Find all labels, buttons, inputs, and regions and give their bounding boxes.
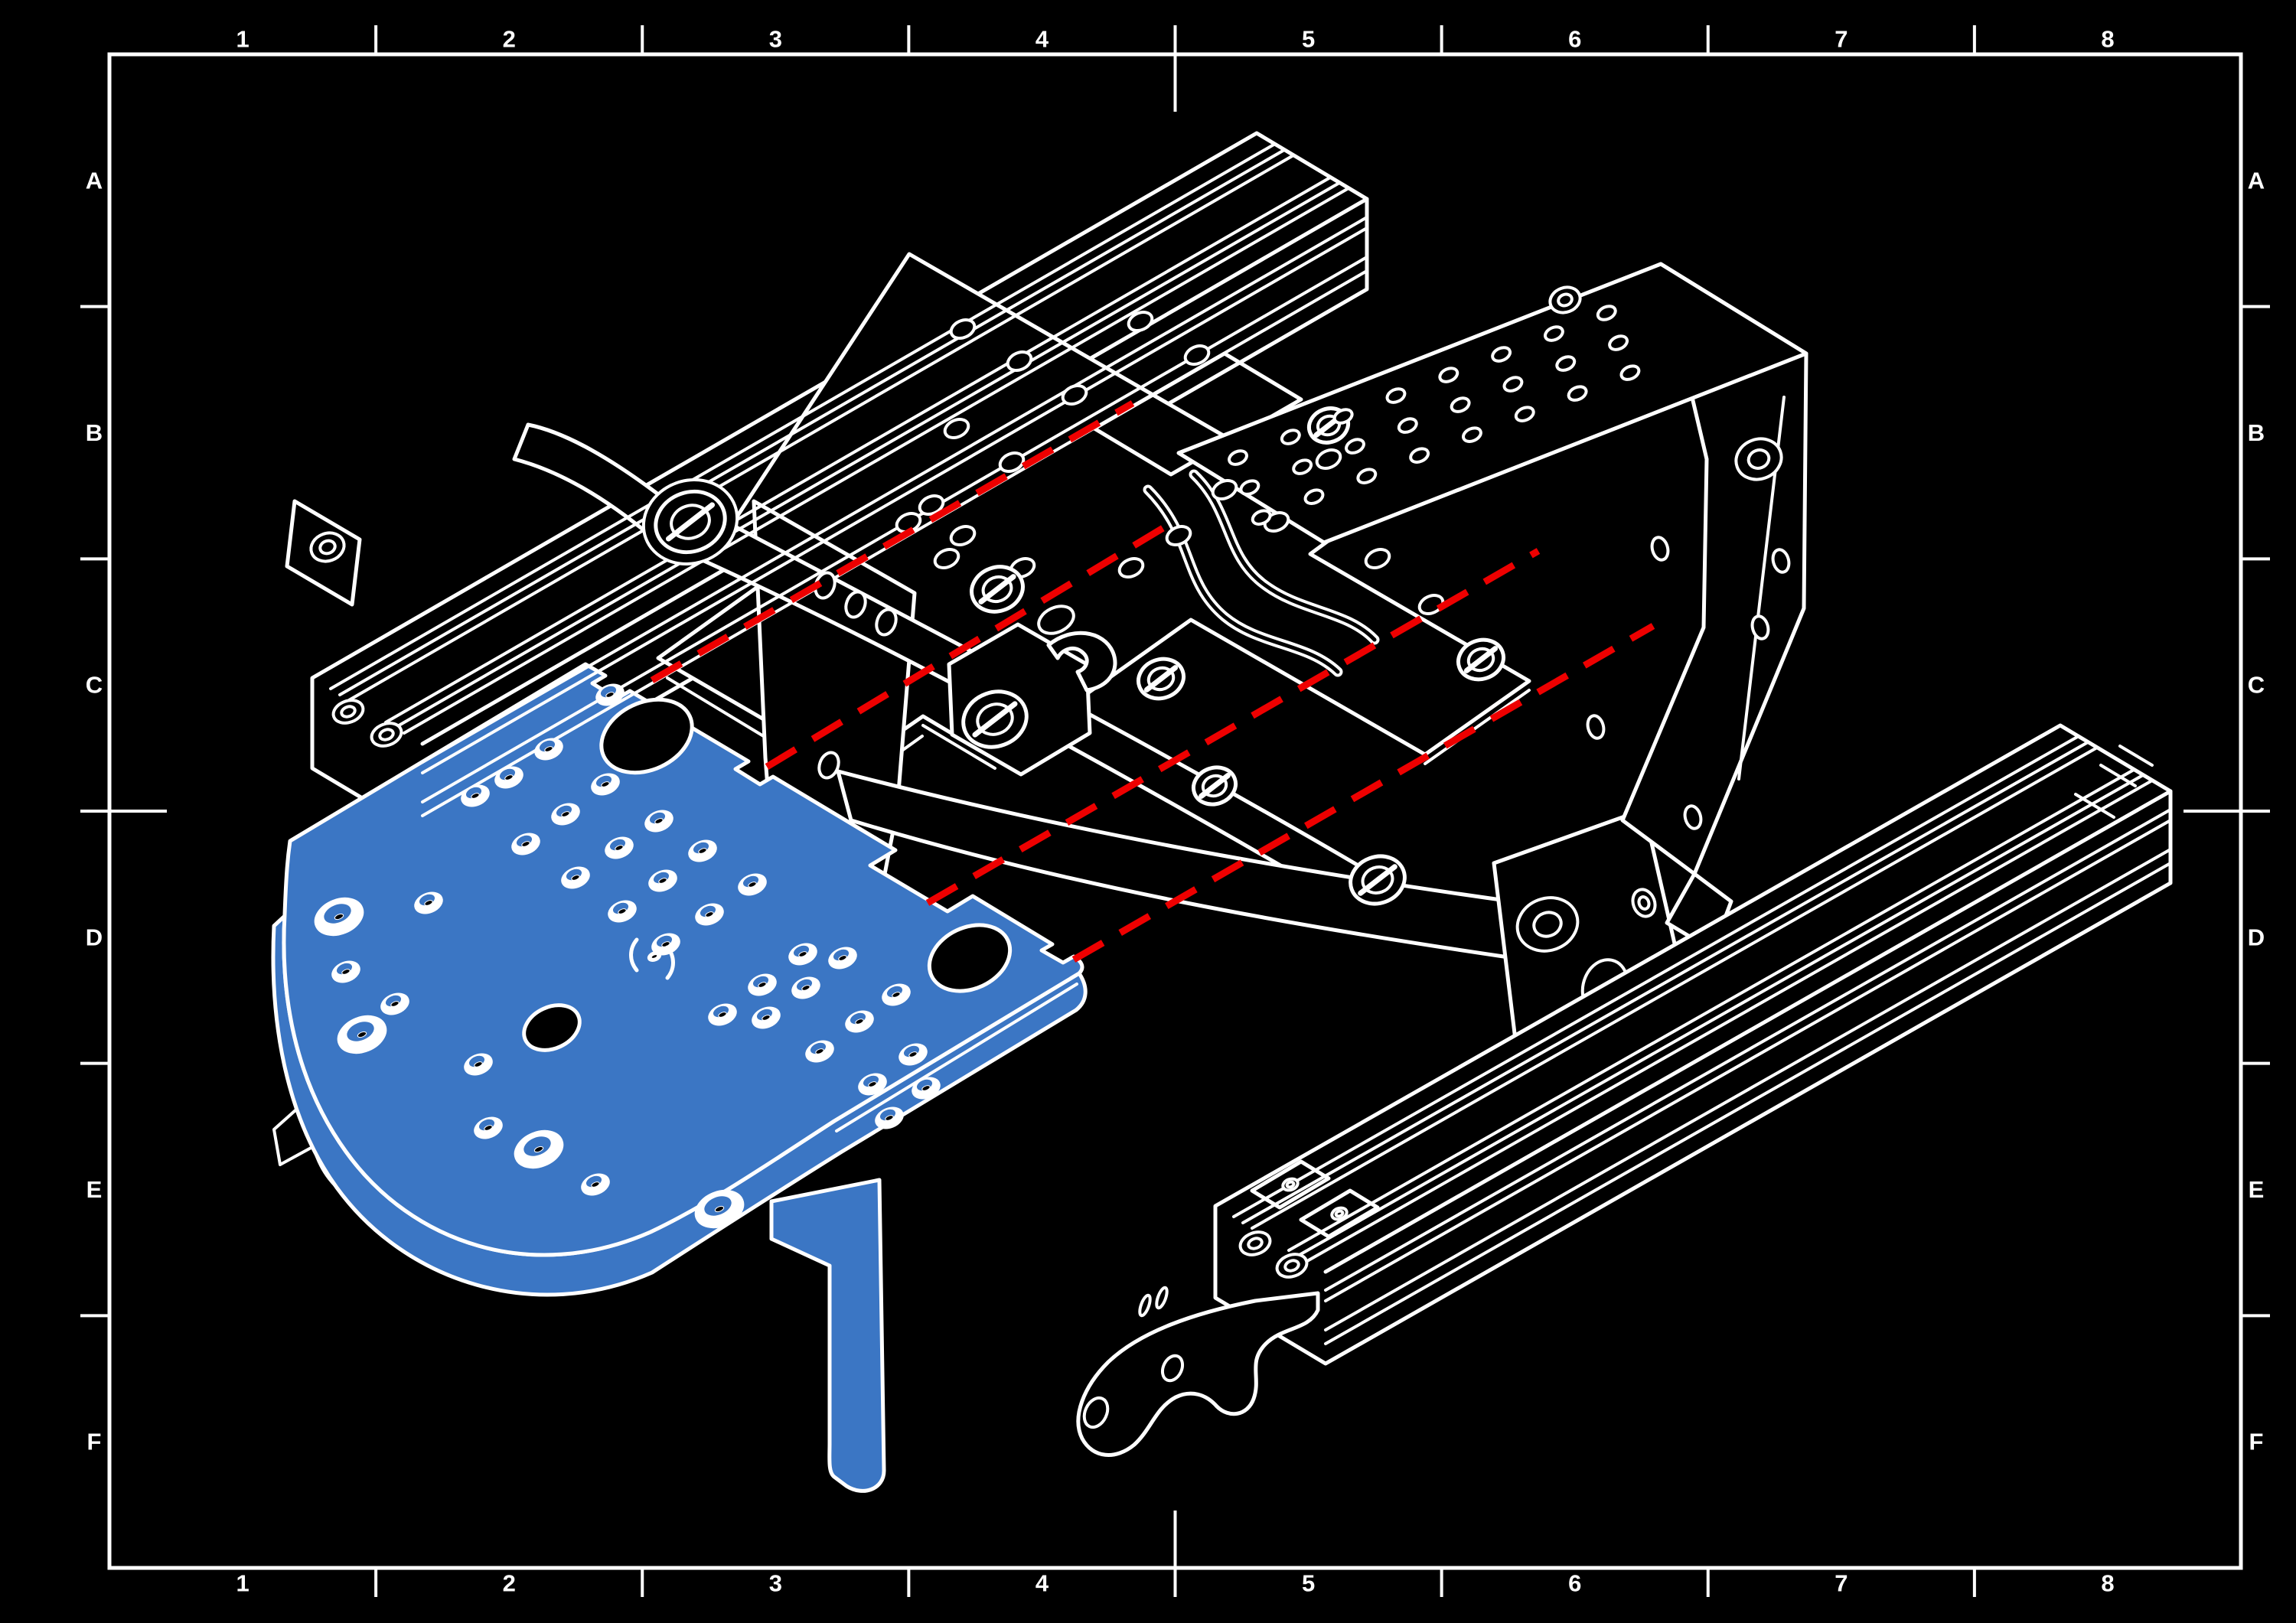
grid-label-col-bottom: 8 [2101, 1570, 2114, 1597]
grid-label-col-bottom: 1 [236, 1570, 249, 1597]
rail-groove-line [1326, 810, 2170, 1290]
grid-label-row-right: B [2248, 419, 2265, 446]
exploded-assembly-view [273, 133, 2170, 1491]
grid-label-row-left: D [86, 924, 103, 950]
grid-label-col-top: 4 [1035, 26, 1049, 53]
drawing-sheet: 1122334455667788AABBCCDDEEFF [0, 0, 2296, 1623]
grid-label-row-right: C [2248, 672, 2265, 699]
grid-label-col-bottom: 5 [1302, 1570, 1315, 1597]
rail-groove-line [1289, 770, 2134, 1250]
slot-hole [1585, 714, 1606, 740]
grid-label-col-top: 2 [503, 26, 516, 53]
ring-inner [1336, 1211, 1344, 1217]
grid-label-col-top: 8 [2101, 26, 2114, 53]
assembly-drawing: 1122334455667788AABBCCDDEEFF [0, 0, 2296, 1623]
grid-label-col-top: 1 [236, 26, 249, 53]
rail-groove-line [1307, 781, 2152, 1261]
grid-label-row-left: F [87, 1429, 102, 1455]
grid-label-col-bottom: 7 [1835, 1570, 1848, 1597]
ring-inner [1287, 1181, 1295, 1188]
slot-hole [1649, 536, 1670, 562]
grid-label-col-bottom: 2 [503, 1570, 516, 1597]
grid-label-col-top: 7 [1835, 26, 1848, 53]
grid-label-row-left: A [86, 167, 103, 194]
grid-label-row-right: D [2248, 924, 2265, 950]
grid-label-row-left: C [86, 672, 103, 699]
part-bottom-wing-bracket [1078, 1293, 1318, 1455]
grid-label-col-bottom: 6 [1568, 1570, 1581, 1597]
slotted-screw [1133, 653, 1189, 705]
grid-label-col-bottom: 3 [769, 1570, 782, 1597]
grid-label-row-right: A [2248, 167, 2265, 194]
rail-groove-line [1298, 775, 2143, 1256]
grid-label-col-top: 6 [1568, 26, 1581, 53]
pan-hole [1363, 546, 1392, 571]
grid-label-row-left: B [86, 419, 103, 446]
grid-label-row-right: E [2249, 1176, 2265, 1203]
part-rail-right-top-edge [1326, 791, 2170, 1272]
grid-label-col-top: 5 [1302, 26, 1315, 53]
grid-label-col-bottom: 4 [1035, 1570, 1049, 1597]
part-blue-plate-leg-right [771, 1180, 884, 1491]
grid-label-row-right: F [2249, 1429, 2264, 1455]
slot-hole [1155, 1286, 1169, 1309]
slot-hole [1138, 1294, 1153, 1317]
grid-label-col-top: 3 [769, 26, 782, 53]
grid-label-row-left: E [86, 1176, 103, 1203]
